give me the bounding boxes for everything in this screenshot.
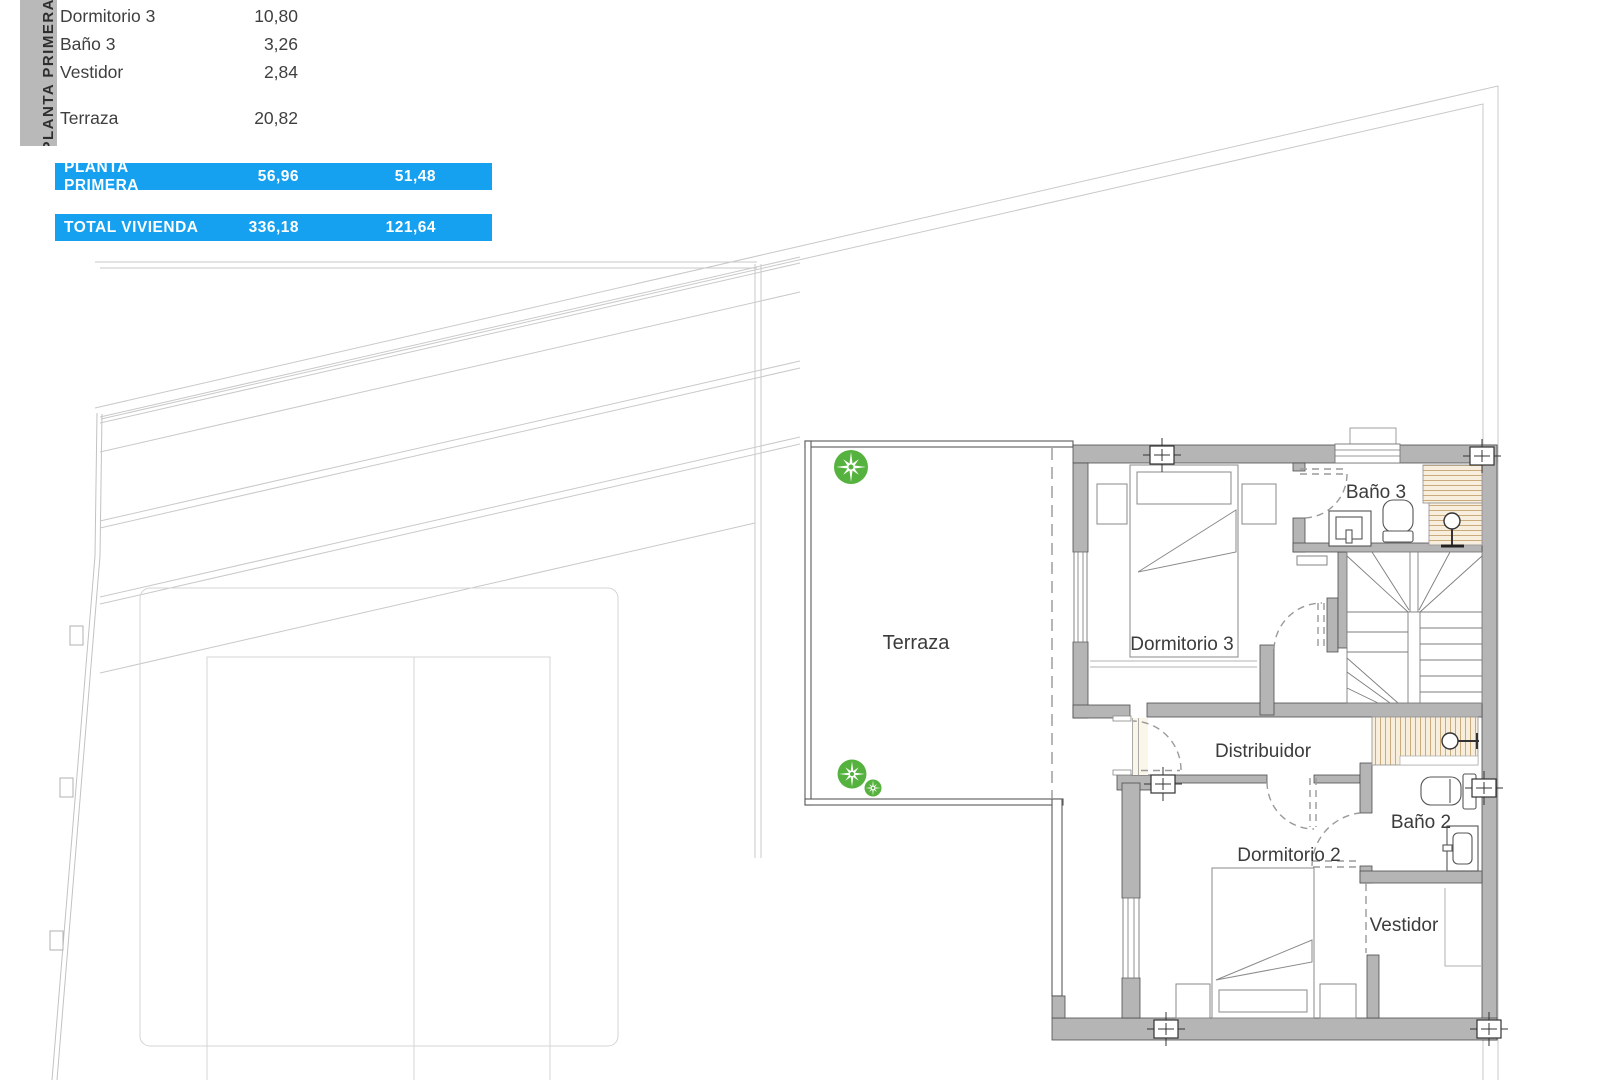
legend-row: Terraza 20,82 xyxy=(60,108,298,129)
bath3-sink xyxy=(1329,511,1371,546)
room-label-dormitorio2: Dormitorio 2 xyxy=(1237,845,1340,866)
total-bar-label: PLANTA PRIMERA xyxy=(55,159,199,195)
floor-title-bar: PLANTA PRIMERA xyxy=(20,0,57,146)
plant-icon xyxy=(838,760,882,797)
planta-primera-total-bar: PLANTA PRIMERA 56,96 51,48 xyxy=(55,163,492,190)
ground-floor-outline xyxy=(140,588,618,1080)
plant-icon xyxy=(834,450,868,484)
room-label-vestidor: Vestidor xyxy=(1370,915,1439,936)
legend-room-name: Dormitorio 3 xyxy=(60,6,155,27)
legend-room-area: 3,26 xyxy=(228,34,298,55)
room-label-dormitorio3: Dormitorio 3 xyxy=(1130,634,1233,655)
legend-room-area: 20,82 xyxy=(228,108,298,129)
room-label-terraza: Terraza xyxy=(883,632,951,654)
floorplan-page: Terraza Dormitorio 3 Baño 3 Distribuidor… xyxy=(0,0,1620,1080)
legend-room-name: Baño 3 xyxy=(60,34,115,55)
roof-band-lines xyxy=(95,257,800,858)
floor-title-label: PLANTA PRIMERA xyxy=(40,0,57,146)
bath2-shower xyxy=(1372,717,1479,765)
window-top-wall xyxy=(1335,428,1400,463)
legend-row: Baño 3 3,26 xyxy=(60,34,298,55)
room-label-bano2: Baño 2 xyxy=(1391,812,1451,833)
window-dorm3-left xyxy=(1074,552,1087,642)
bed-dormitorio2 xyxy=(1176,868,1356,1018)
legend-room-name: Vestidor xyxy=(60,62,123,83)
window-dorm2-left xyxy=(1123,898,1139,978)
axis-marker-icon xyxy=(1470,1012,1508,1046)
total-bar-useful-area: 121,64 xyxy=(299,219,436,237)
room-label-distribuidor: Distribuidor xyxy=(1215,741,1312,762)
staircase xyxy=(1347,552,1482,703)
legend-room-area: 10,80 xyxy=(228,6,298,27)
terraza-parapet xyxy=(805,441,1073,996)
terraza-door xyxy=(1113,716,1181,775)
total-bar-useful-area: 51,48 xyxy=(299,168,436,186)
bath3-niche xyxy=(1297,556,1327,565)
vestidor-wardrobe xyxy=(1445,888,1481,966)
total-vivienda-bar: TOTAL VIVIENDA 336,18 121,64 xyxy=(55,214,492,241)
room-label-bano3: Baño 3 xyxy=(1346,482,1406,503)
legend-row: Dormitorio 3 10,80 xyxy=(60,6,298,27)
bath3-toilet xyxy=(1383,500,1413,542)
axis-marker-icon xyxy=(1144,767,1182,801)
total-bar-label: TOTAL VIVIENDA xyxy=(55,219,199,237)
bath2-toilet xyxy=(1421,774,1476,809)
total-bar-built-area: 56,96 xyxy=(199,168,299,186)
legend-row: Vestidor 2,84 xyxy=(60,62,298,83)
legend-room-name: Terraza xyxy=(60,108,118,129)
legend-room-area: 2,84 xyxy=(228,62,298,83)
fence-line xyxy=(50,413,102,1080)
total-bar-built-area: 336,18 xyxy=(199,219,299,237)
bath3-shower xyxy=(1423,465,1482,546)
floorplan-drawing: Terraza Dormitorio 3 Baño 3 Distribuidor… xyxy=(0,0,1620,1080)
